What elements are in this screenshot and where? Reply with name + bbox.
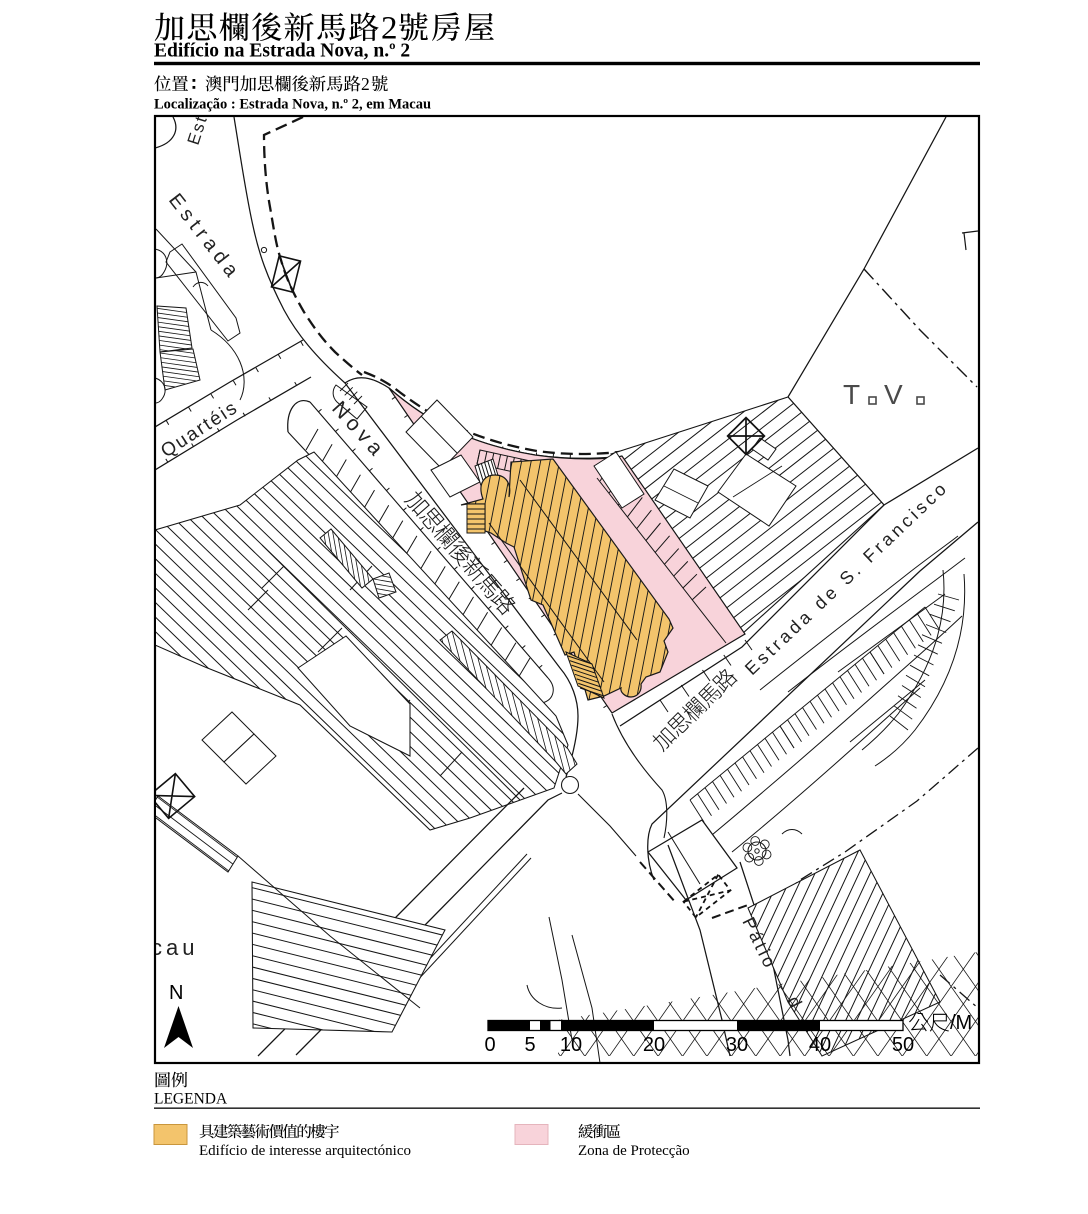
svg-text:30: 30 [726,1034,748,1056]
svg-text:N: N [169,982,183,1004]
svg-text:2: 2 [361,74,370,94]
svg-text:10: 10 [560,1034,582,1056]
svg-text:Edifício na Estrada Nova, n.º: Edifício na Estrada Nova, n.º 2 [154,41,410,62]
svg-text:T: T [843,379,860,410]
svg-text:cau: cau [151,935,198,960]
svg-text:/M: /M [950,1012,972,1034]
svg-text:40: 40 [809,1034,831,1056]
svg-text:Edifício de interesse arquitec: Edifício de interesse arquitectónico [199,1143,411,1159]
svg-text:LEGENDA: LEGENDA [154,1091,228,1108]
svg-text:Zona de Protecção: Zona de Protecção [578,1143,690,1159]
svg-text:V: V [884,379,903,410]
svg-text:5: 5 [524,1034,535,1056]
svg-text:Localização : Estrada Nova, n.: Localização : Estrada Nova, n.º 2, em Ma… [154,97,431,113]
svg-text:20: 20 [643,1034,665,1056]
svg-text:0: 0 [484,1034,495,1056]
svg-text:50: 50 [892,1034,914,1056]
